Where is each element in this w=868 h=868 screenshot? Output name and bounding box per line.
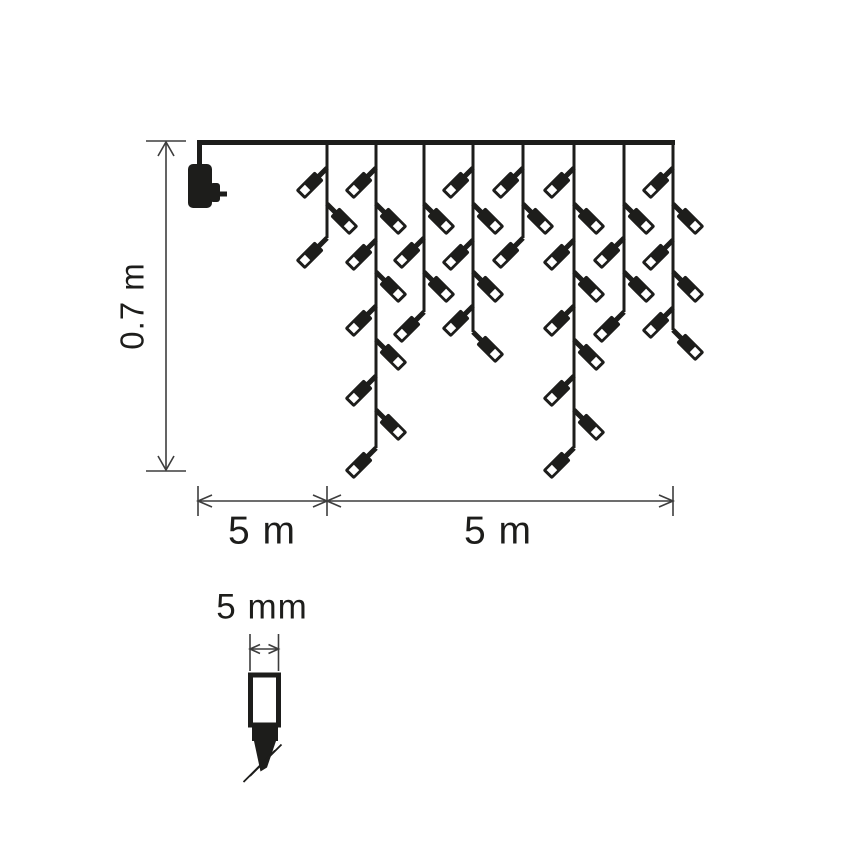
led-bulb: [468, 327, 504, 363]
icicle-drop: [393, 140, 456, 343]
icicle-drop: [543, 140, 606, 479]
height-dimension: [146, 141, 186, 471]
icicle-drop: [642, 140, 705, 361]
led-bulb: [593, 307, 629, 343]
adapter-plug: [210, 183, 220, 202]
bulb-width-label: 5 mm: [216, 590, 308, 625]
led-bulb: [296, 233, 332, 269]
power-adapter: [188, 140, 227, 208]
height-dimension-label: 0.7 m: [116, 262, 149, 350]
led-bulb: [345, 443, 381, 479]
led-bulb: [393, 307, 429, 343]
icicle-lights-dimension-diagram: 0.7 m 5 m 5 m 5 mm: [0, 0, 868, 868]
lit-span-label: 5 m: [464, 512, 532, 551]
icicle-drop: [492, 140, 555, 269]
detail-bulb-collar: [252, 727, 278, 741]
lead-span-label: 5 m: [228, 512, 296, 551]
detail-bulb-tip: [254, 741, 276, 772]
detail-bulb-body: [251, 675, 279, 725]
icicle-drop: [442, 140, 505, 363]
icicle-drop: [345, 140, 408, 479]
icicle-drop: [593, 140, 656, 343]
adapter-pin: [219, 192, 227, 197]
icicle-drop: [296, 140, 359, 269]
bulb-detail: [244, 634, 282, 782]
led-bulb: [668, 325, 704, 361]
led-bulb: [543, 443, 579, 479]
diagram-graphics: [0, 0, 868, 868]
led-bulb: [492, 233, 528, 269]
adapter-body: [188, 164, 212, 208]
